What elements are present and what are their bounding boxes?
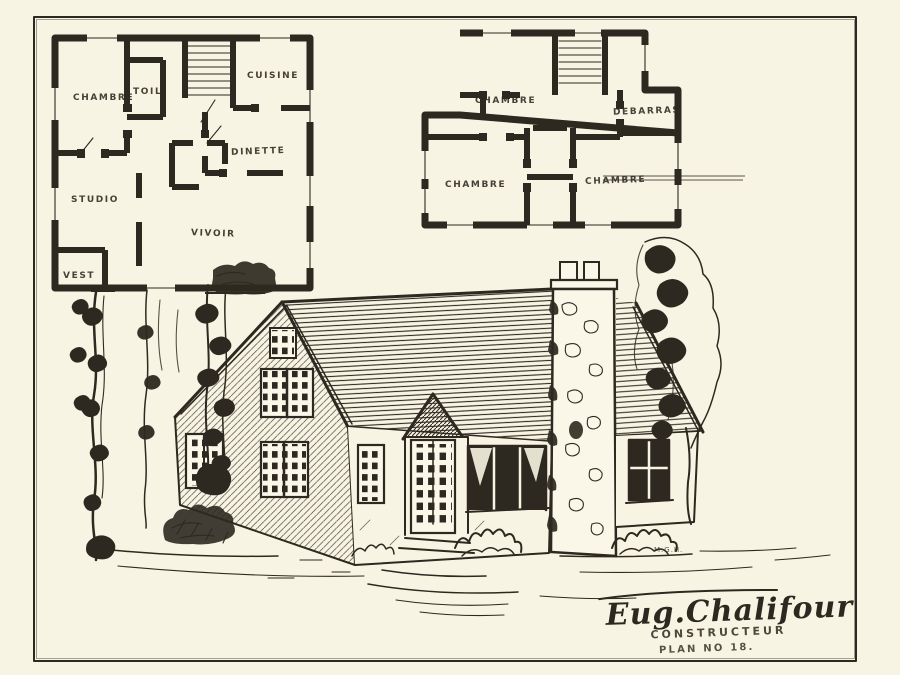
- plan1-door-jambs: [77, 104, 259, 177]
- room-label-dinette: DINETTE: [231, 146, 286, 158]
- stone-chimney: [547, 262, 617, 556]
- signature-block: Eug.Chalifour CONSTRUCTEUR PLAN NO 18.: [599, 586, 856, 658]
- gable-lower-windows: [261, 442, 308, 497]
- plan1-stairs: [188, 46, 230, 122]
- walkway-strokes: [368, 570, 518, 616]
- room-label-debarras: DEBARRAS: [613, 105, 681, 117]
- front-door: [411, 440, 455, 533]
- attic-window: [270, 328, 296, 358]
- first-floor-plan: CHAMBRE TOIL CUISINE DINETTE STUDIO VIVO…: [55, 38, 310, 295]
- room-label-toilette: TOIL: [133, 87, 162, 97]
- artist-monogram: M.G.H.: [654, 546, 683, 554]
- right-wing: [616, 298, 703, 527]
- room-label-chambre-right: CHAMBRE: [585, 175, 647, 187]
- room-label-cuisine: CUISINE: [247, 71, 299, 81]
- vintage-house-plan-drawing: CHAMBRE TOIL CUISINE DINETTE STUDIO VIVO…: [0, 0, 900, 675]
- room-label-chambre-1: CHAMBRE: [73, 93, 134, 103]
- plan1-fireplace: [211, 261, 277, 294]
- gable-mid-windows: [261, 369, 313, 417]
- drawing-svg: CHAMBRE TOIL CUISINE DINETTE STUDIO VIVO…: [0, 0, 900, 675]
- room-label-studio: STUDIO: [71, 195, 119, 205]
- wing-window: [626, 440, 673, 503]
- picture-window: [466, 446, 549, 512]
- plan2-stairs: [559, 41, 601, 83]
- plan-number: PLAN NO 18.: [659, 642, 755, 656]
- room-label-vestibule: VEST: [63, 271, 95, 281]
- room-label-chambre-top: CHAMBRE: [475, 96, 536, 106]
- house-sketch: [70, 237, 830, 615]
- sidelight-window: [358, 445, 384, 503]
- second-floor-plan: CHAMBRE DEBARRAS CHAMBRE CHAMBRE: [425, 33, 745, 225]
- room-label-chambre-left: CHAMBRE: [445, 180, 506, 190]
- room-label-vivoir: VIVOIR: [191, 228, 236, 240]
